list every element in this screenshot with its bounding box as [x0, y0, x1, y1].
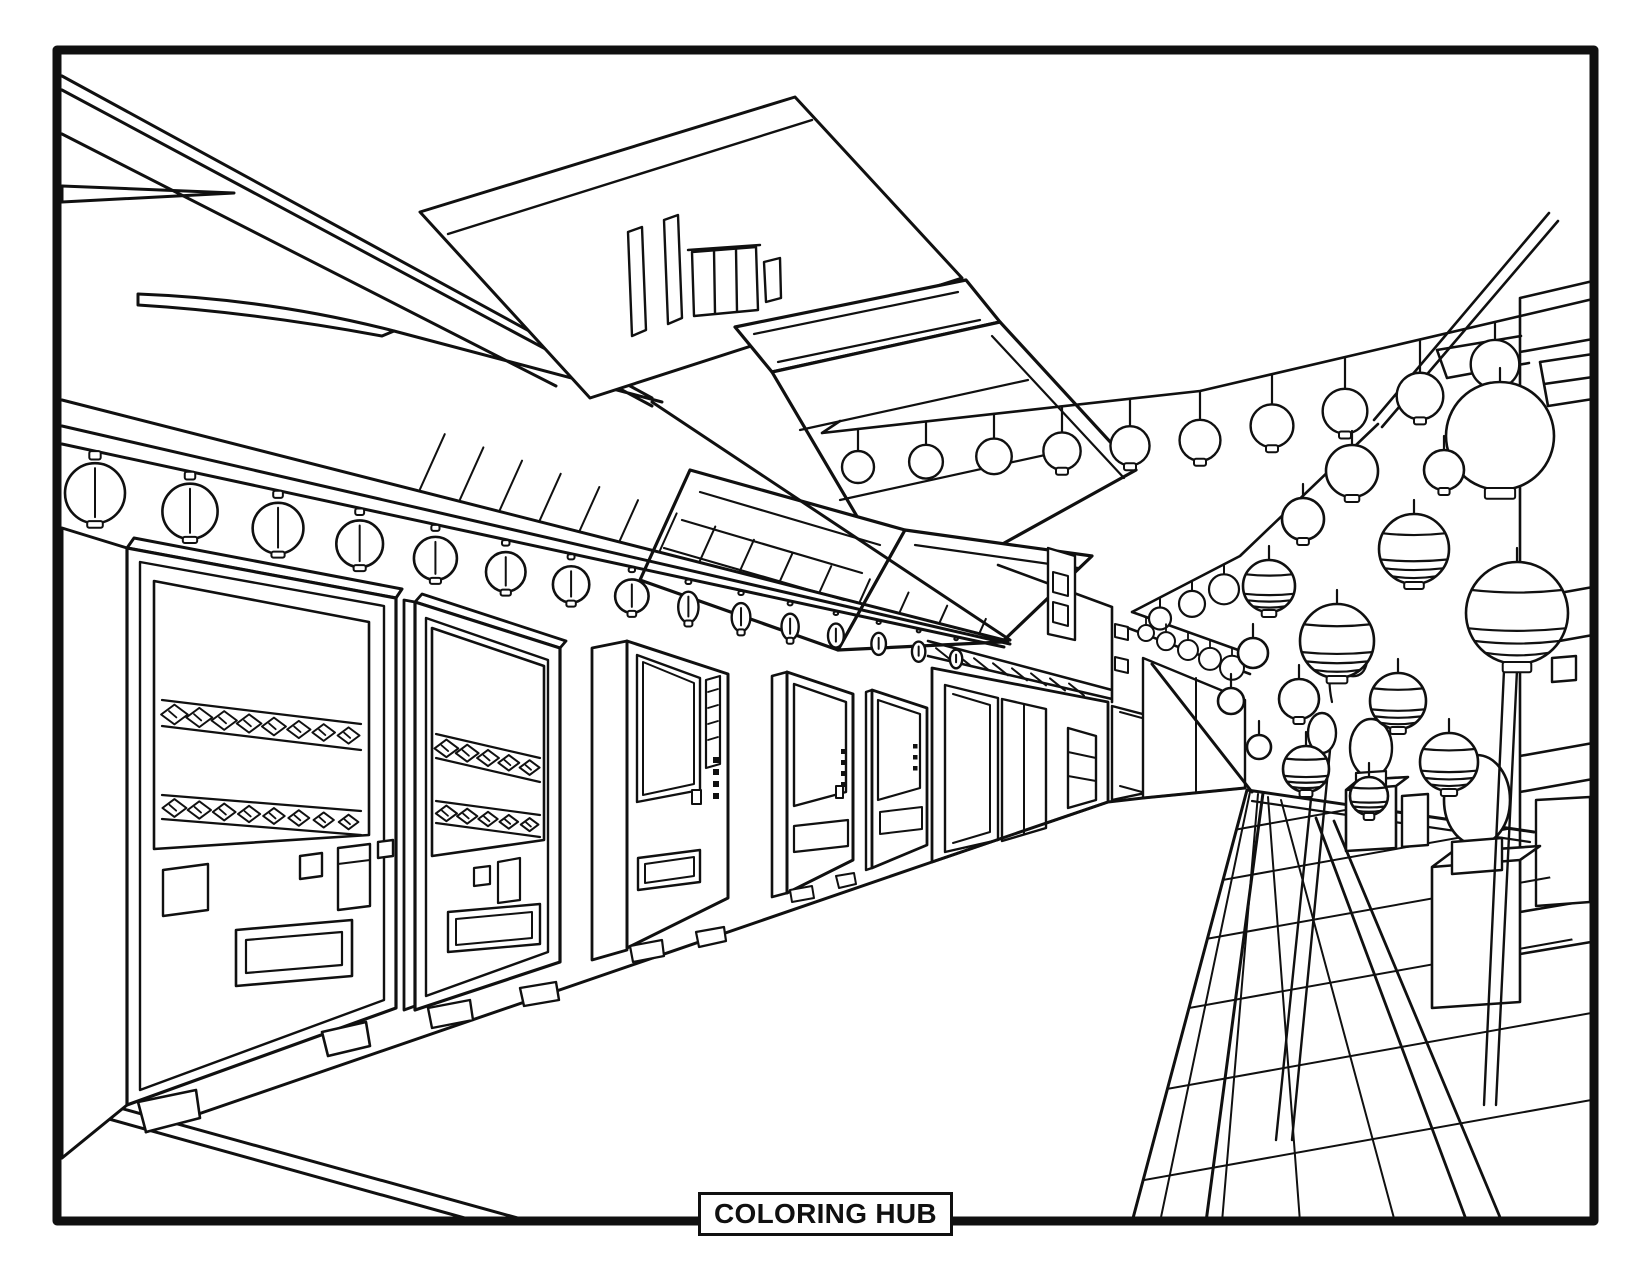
coloring-page: COLORING HUB: [0, 0, 1650, 1275]
badge-label: COLORING HUB: [714, 1198, 937, 1230]
coloring-hub-badge: COLORING HUB: [698, 1192, 953, 1236]
vending-machine-2: [404, 594, 566, 1028]
coloring-page-illustration: [0, 0, 1650, 1275]
vending-machine-5: [866, 690, 927, 870]
